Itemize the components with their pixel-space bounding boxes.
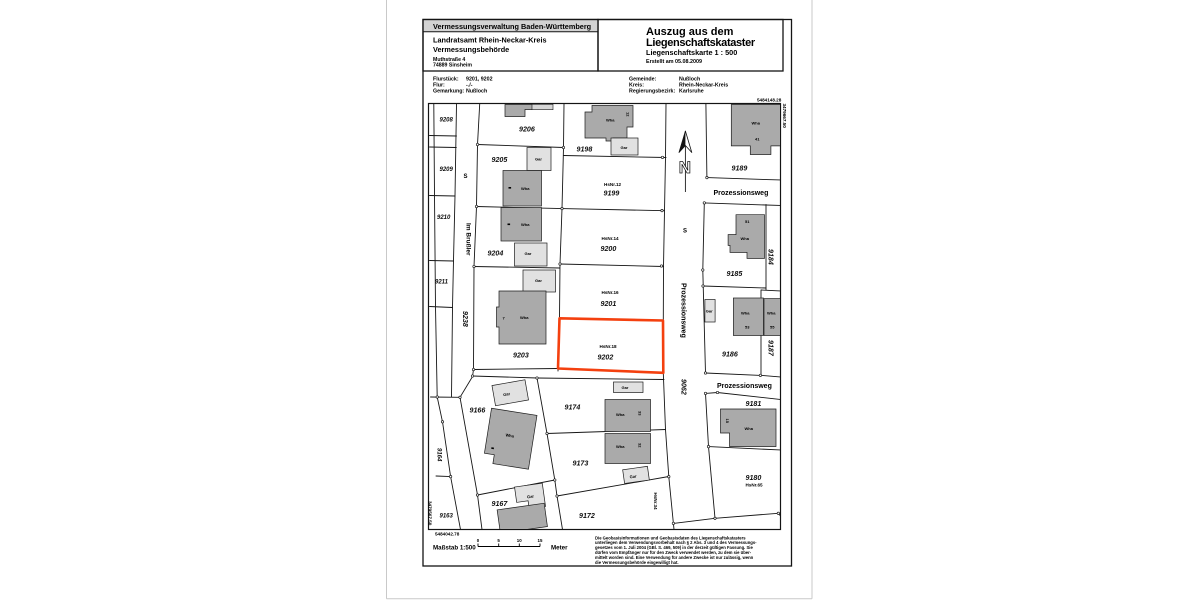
svg-text:Regierungsbezirk:: Regierungsbezirk: bbox=[629, 88, 675, 94]
svg-text:Prozessionsweg: Prozessionsweg bbox=[714, 190, 769, 197]
svg-text:15: 15 bbox=[538, 538, 543, 543]
svg-text:Wha: Wha bbox=[752, 121, 761, 126]
svg-text:Gar: Gar bbox=[622, 385, 629, 390]
svg-text:9189: 9189 bbox=[732, 165, 748, 173]
svg-text:9172: 9172 bbox=[579, 512, 595, 520]
svg-text:32: 32 bbox=[638, 443, 643, 448]
svg-text:33: 33 bbox=[638, 411, 643, 416]
svg-text:9164: 9164 bbox=[436, 448, 442, 462]
svg-text:Gar: Gar bbox=[629, 473, 637, 479]
svg-text:Karlsruhe: Karlsruhe bbox=[679, 88, 704, 94]
svg-text:9167: 9167 bbox=[492, 500, 509, 508]
svg-text:9198: 9198 bbox=[577, 146, 593, 154]
svg-text:9206: 9206 bbox=[519, 126, 535, 134]
svg-text:5484148.28: 5484148.28 bbox=[757, 98, 782, 103]
svg-text:HsNr.16: HsNr.16 bbox=[602, 290, 620, 295]
svg-text:9186: 9186 bbox=[722, 351, 738, 359]
svg-text:HsNr.14: HsNr.14 bbox=[602, 236, 620, 241]
svg-text:Wha: Wha bbox=[521, 186, 530, 191]
svg-text:9180: 9180 bbox=[746, 474, 762, 482]
svg-text:3479667.50: 3479667.50 bbox=[782, 104, 787, 129]
svg-text:9184: 9184 bbox=[767, 249, 775, 265]
svg-text:Gar: Gar bbox=[706, 309, 713, 314]
svg-text:Wha: Wha bbox=[745, 426, 754, 431]
svg-text:Gemarkung:: Gemarkung: bbox=[433, 88, 464, 94]
svg-text:12: 12 bbox=[626, 112, 631, 117]
svg-text:9187: 9187 bbox=[767, 340, 775, 357]
svg-text:9202: 9202 bbox=[598, 354, 614, 362]
svg-text:Maßstab 1:500: Maßstab 1:500 bbox=[433, 545, 476, 552]
svg-text:Vermessungsbehörde: Vermessungsbehörde bbox=[433, 45, 509, 54]
svg-text:41: 41 bbox=[755, 137, 760, 142]
svg-text:HsNr.18: HsNr.18 bbox=[600, 344, 618, 349]
svg-text:Liegenschaftskarte 1 : 500: Liegenschaftskarte 1 : 500 bbox=[646, 48, 737, 57]
svg-text:9210: 9210 bbox=[437, 215, 451, 221]
svg-text:51: 51 bbox=[745, 219, 750, 224]
svg-text:9205: 9205 bbox=[492, 156, 509, 164]
svg-text:9238: 9238 bbox=[461, 311, 469, 327]
svg-text:Wha: Wha bbox=[616, 412, 625, 417]
svg-text:3479567.50: 3479567.50 bbox=[428, 501, 433, 526]
svg-text:HsNr.12: HsNr.12 bbox=[604, 182, 622, 187]
svg-text:9163: 9163 bbox=[440, 514, 454, 520]
svg-text:Gar: Gar bbox=[535, 157, 542, 162]
svg-text:74889 Sinsheim: 74889 Sinsheim bbox=[433, 62, 472, 68]
svg-text:9181: 9181 bbox=[746, 400, 762, 408]
svg-text:Wha: Wha bbox=[616, 444, 625, 449]
svg-text:Gar: Gar bbox=[525, 251, 532, 256]
svg-text:HsNr.34: HsNr.34 bbox=[653, 493, 658, 511]
svg-text:5484042.78: 5484042.78 bbox=[435, 532, 460, 537]
svg-text:Im Brußler: Im Brußler bbox=[465, 223, 472, 256]
svg-text:9201: 9201 bbox=[601, 300, 617, 308]
svg-text:Wha: Wha bbox=[767, 311, 776, 316]
svg-text:9204: 9204 bbox=[488, 250, 504, 258]
svg-text:9062: 9062 bbox=[680, 379, 688, 395]
svg-text:9173: 9173 bbox=[573, 460, 589, 468]
svg-text:N: N bbox=[679, 158, 691, 177]
svg-text:9166: 9166 bbox=[470, 407, 486, 415]
svg-text:9208: 9208 bbox=[440, 118, 454, 124]
svg-text:9211: 9211 bbox=[435, 280, 449, 286]
svg-text:9199: 9199 bbox=[604, 190, 620, 198]
svg-text:Meter: Meter bbox=[551, 545, 568, 552]
svg-text:Wha: Wha bbox=[606, 118, 615, 123]
svg-text:Erstellt am 05.08.2009: Erstellt am 05.08.2009 bbox=[646, 59, 702, 65]
svg-text:Gar: Gar bbox=[535, 278, 542, 283]
svg-text:Wha: Wha bbox=[741, 236, 750, 241]
svg-text:15: 15 bbox=[725, 419, 730, 424]
svg-text:Wha: Wha bbox=[521, 222, 530, 227]
svg-text:S: S bbox=[464, 174, 468, 180]
svg-text:Prozessionsweg: Prozessionsweg bbox=[717, 383, 772, 390]
svg-text:55: 55 bbox=[770, 325, 775, 330]
svg-text:Wha: Wha bbox=[741, 311, 750, 316]
svg-text:Nußloch: Nußloch bbox=[466, 88, 487, 94]
svg-text:Prozessionsweg: Prozessionsweg bbox=[679, 283, 686, 338]
svg-text:Gar: Gar bbox=[527, 493, 535, 499]
svg-text:9185: 9185 bbox=[727, 270, 744, 278]
svg-text:Gar: Gar bbox=[621, 145, 628, 150]
svg-text:10: 10 bbox=[517, 538, 522, 543]
svg-text:Vermessungsverwaltung Baden-Wü: Vermessungsverwaltung Baden-Württemberg bbox=[433, 22, 591, 31]
svg-text:die Vermessungsbehörde eingewi: die Vermessungsbehörde eingewilligt hat. bbox=[595, 560, 679, 565]
svg-text:9209: 9209 bbox=[440, 167, 454, 173]
svg-text:9203: 9203 bbox=[513, 352, 529, 360]
svg-text:Wha: Wha bbox=[520, 315, 529, 320]
svg-text:53: 53 bbox=[745, 325, 750, 330]
svg-text:9174: 9174 bbox=[565, 404, 581, 412]
svg-text:Liegenschaftskataster: Liegenschaftskataster bbox=[646, 37, 756, 49]
svg-text:Landratsamt Rhein-Neckar-Kreis: Landratsamt Rhein-Neckar-Kreis bbox=[433, 35, 547, 44]
svg-text:HsNr.65: HsNr.65 bbox=[746, 483, 764, 488]
svg-text:S: S bbox=[683, 229, 687, 235]
svg-text:9200: 9200 bbox=[601, 245, 617, 253]
